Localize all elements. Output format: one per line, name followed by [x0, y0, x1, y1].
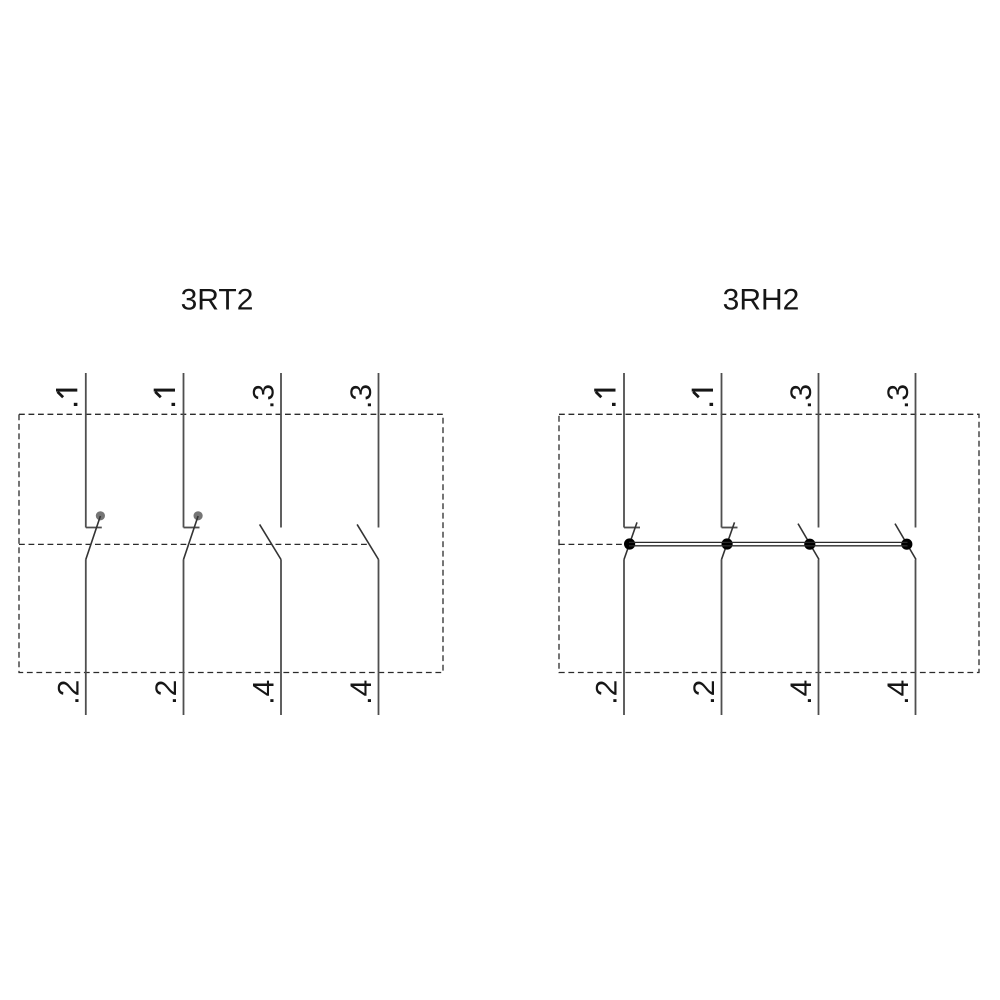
svg-text:.3: .3: [345, 384, 378, 409]
svg-text:.2: .2: [688, 680, 721, 705]
svg-text:.3: .3: [785, 384, 818, 409]
svg-text:.4: .4: [345, 680, 378, 705]
svg-text:.3: .3: [248, 384, 281, 409]
svg-text:.2: .2: [150, 680, 183, 705]
svg-text:.4: .4: [882, 680, 915, 705]
svg-text:.4: .4: [248, 680, 281, 705]
svg-text:.2: .2: [591, 680, 624, 705]
svg-text:3RT2: 3RT2: [181, 284, 254, 317]
svg-text:.3: .3: [882, 384, 915, 409]
svg-text:.2: .2: [52, 680, 85, 705]
svg-text:3RH2: 3RH2: [723, 284, 800, 317]
svg-text:.4: .4: [785, 680, 818, 705]
